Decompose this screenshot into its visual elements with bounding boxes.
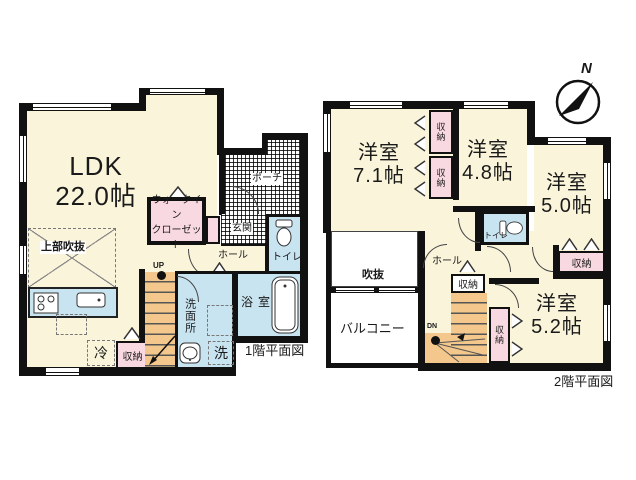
window bbox=[19, 136, 27, 182]
ldk-name: LDK bbox=[69, 152, 123, 182]
bifold-door-icon bbox=[413, 115, 426, 131]
wall-segment bbox=[553, 273, 611, 279]
fridge-label: 冷 bbox=[94, 343, 108, 363]
balcony-label: バルコニー bbox=[340, 322, 405, 337]
room-71-name: 洋室 bbox=[358, 142, 400, 165]
washroom-label: 洗面所 bbox=[183, 298, 196, 334]
bifold-door-icon bbox=[413, 181, 426, 197]
hall-label-f1: ホール bbox=[218, 250, 248, 262]
genkan-label: 玄関 bbox=[231, 223, 253, 235]
open-ceiling-label-f1: 上部吹抜 bbox=[40, 241, 86, 254]
room-52-size: 5.2帖 bbox=[531, 316, 583, 339]
stove-icon bbox=[33, 292, 59, 314]
kitchen-sink-icon bbox=[76, 292, 106, 308]
wall-segment bbox=[418, 363, 611, 371]
room-52-label: 洋室 5.2帖 bbox=[515, 286, 599, 346]
room-71-label: 洋室 7.1帖 bbox=[333, 135, 425, 195]
laundry-label: 洗 bbox=[214, 343, 228, 363]
window bbox=[46, 367, 79, 376]
vanity-dashed-box bbox=[207, 305, 233, 336]
storage-hall-f2: 収納 bbox=[451, 274, 485, 293]
room-50-name: 洋室 bbox=[546, 172, 588, 195]
window bbox=[464, 101, 508, 109]
bifold-door-icon bbox=[413, 160, 426, 176]
window bbox=[19, 246, 27, 274]
open-ceiling-f1 bbox=[28, 228, 116, 288]
wall-segment bbox=[217, 88, 224, 154]
wall-segment bbox=[418, 231, 425, 363]
room-48-name: 洋室 bbox=[467, 139, 509, 162]
ldk-label: LDK 22.0帖 bbox=[40, 150, 152, 214]
north-label: N bbox=[581, 60, 592, 77]
room-48-size: 4.8帖 bbox=[462, 162, 514, 185]
floor-plan-image: ポーチ 玄関 LDK 22.0帖 上部吹抜 冷 収納 UP ウォークイン クロー… bbox=[0, 0, 636, 480]
storage-mid-f2: 収納 bbox=[489, 307, 510, 363]
storage-kitchen-label: 収納 bbox=[123, 348, 143, 363]
room-50-label: 洋室 5.0帖 bbox=[526, 165, 608, 225]
window bbox=[548, 137, 586, 145]
fridge-space: 冷 bbox=[87, 340, 115, 366]
wall-segment bbox=[326, 363, 423, 368]
bifold-door-icon bbox=[413, 136, 426, 152]
stair-post-f1 bbox=[157, 271, 166, 280]
bifold-door-icon bbox=[169, 186, 187, 198]
walk-in-closet: ウォークイン クローゼット bbox=[147, 197, 206, 245]
room-ldk-notch bbox=[146, 95, 217, 115]
wic-label-2: クローゼット bbox=[151, 221, 202, 251]
small-closet-f1 bbox=[206, 216, 220, 244]
laundry-space: 洗 bbox=[208, 341, 234, 365]
storage-east-label: 収納 bbox=[572, 255, 592, 270]
storage-east-f2: 収納 bbox=[558, 251, 605, 273]
window bbox=[603, 305, 611, 341]
bifold-door-icon bbox=[123, 327, 141, 340]
kitchen-dashed-box bbox=[56, 314, 87, 335]
window bbox=[33, 103, 111, 111]
room-52-name: 洋室 bbox=[536, 293, 578, 316]
window bbox=[150, 88, 205, 95]
floor1-caption: 1階平面図 bbox=[245, 344, 304, 359]
room-48-label: 洋室 4.8帖 bbox=[444, 132, 532, 192]
room-50-size: 5.0帖 bbox=[541, 195, 593, 218]
storage-mid-label: 収納 bbox=[493, 325, 506, 345]
stair-arrow-f1 bbox=[146, 334, 177, 367]
floor2-caption: 2階平面図 bbox=[554, 375, 613, 390]
ldk-size: 22.0帖 bbox=[55, 182, 137, 212]
porch-label: ポーチ bbox=[251, 173, 283, 185]
stair-post-f2 bbox=[431, 336, 440, 345]
bifold-door-icon bbox=[459, 260, 476, 273]
up-label: UP bbox=[153, 261, 164, 270]
dn-label: DN bbox=[427, 323, 437, 331]
washbasin-icon bbox=[179, 342, 201, 364]
room-71-size: 7.1帖 bbox=[353, 165, 405, 188]
toilet-icon bbox=[272, 219, 296, 249]
toilet-label-f2: トイレ bbox=[484, 231, 508, 240]
storage-hall-f2-label: 収納 bbox=[458, 276, 478, 291]
window bbox=[350, 101, 402, 109]
toilet-label-f1: トイレ bbox=[272, 252, 302, 264]
open-void-label: 吹抜 bbox=[361, 269, 385, 282]
bath-label: 浴室 bbox=[241, 296, 275, 310]
window bbox=[323, 114, 331, 152]
bifold-door-icon bbox=[583, 238, 600, 251]
bifold-door-icon bbox=[561, 238, 578, 251]
bathtub-icon bbox=[271, 276, 299, 334]
